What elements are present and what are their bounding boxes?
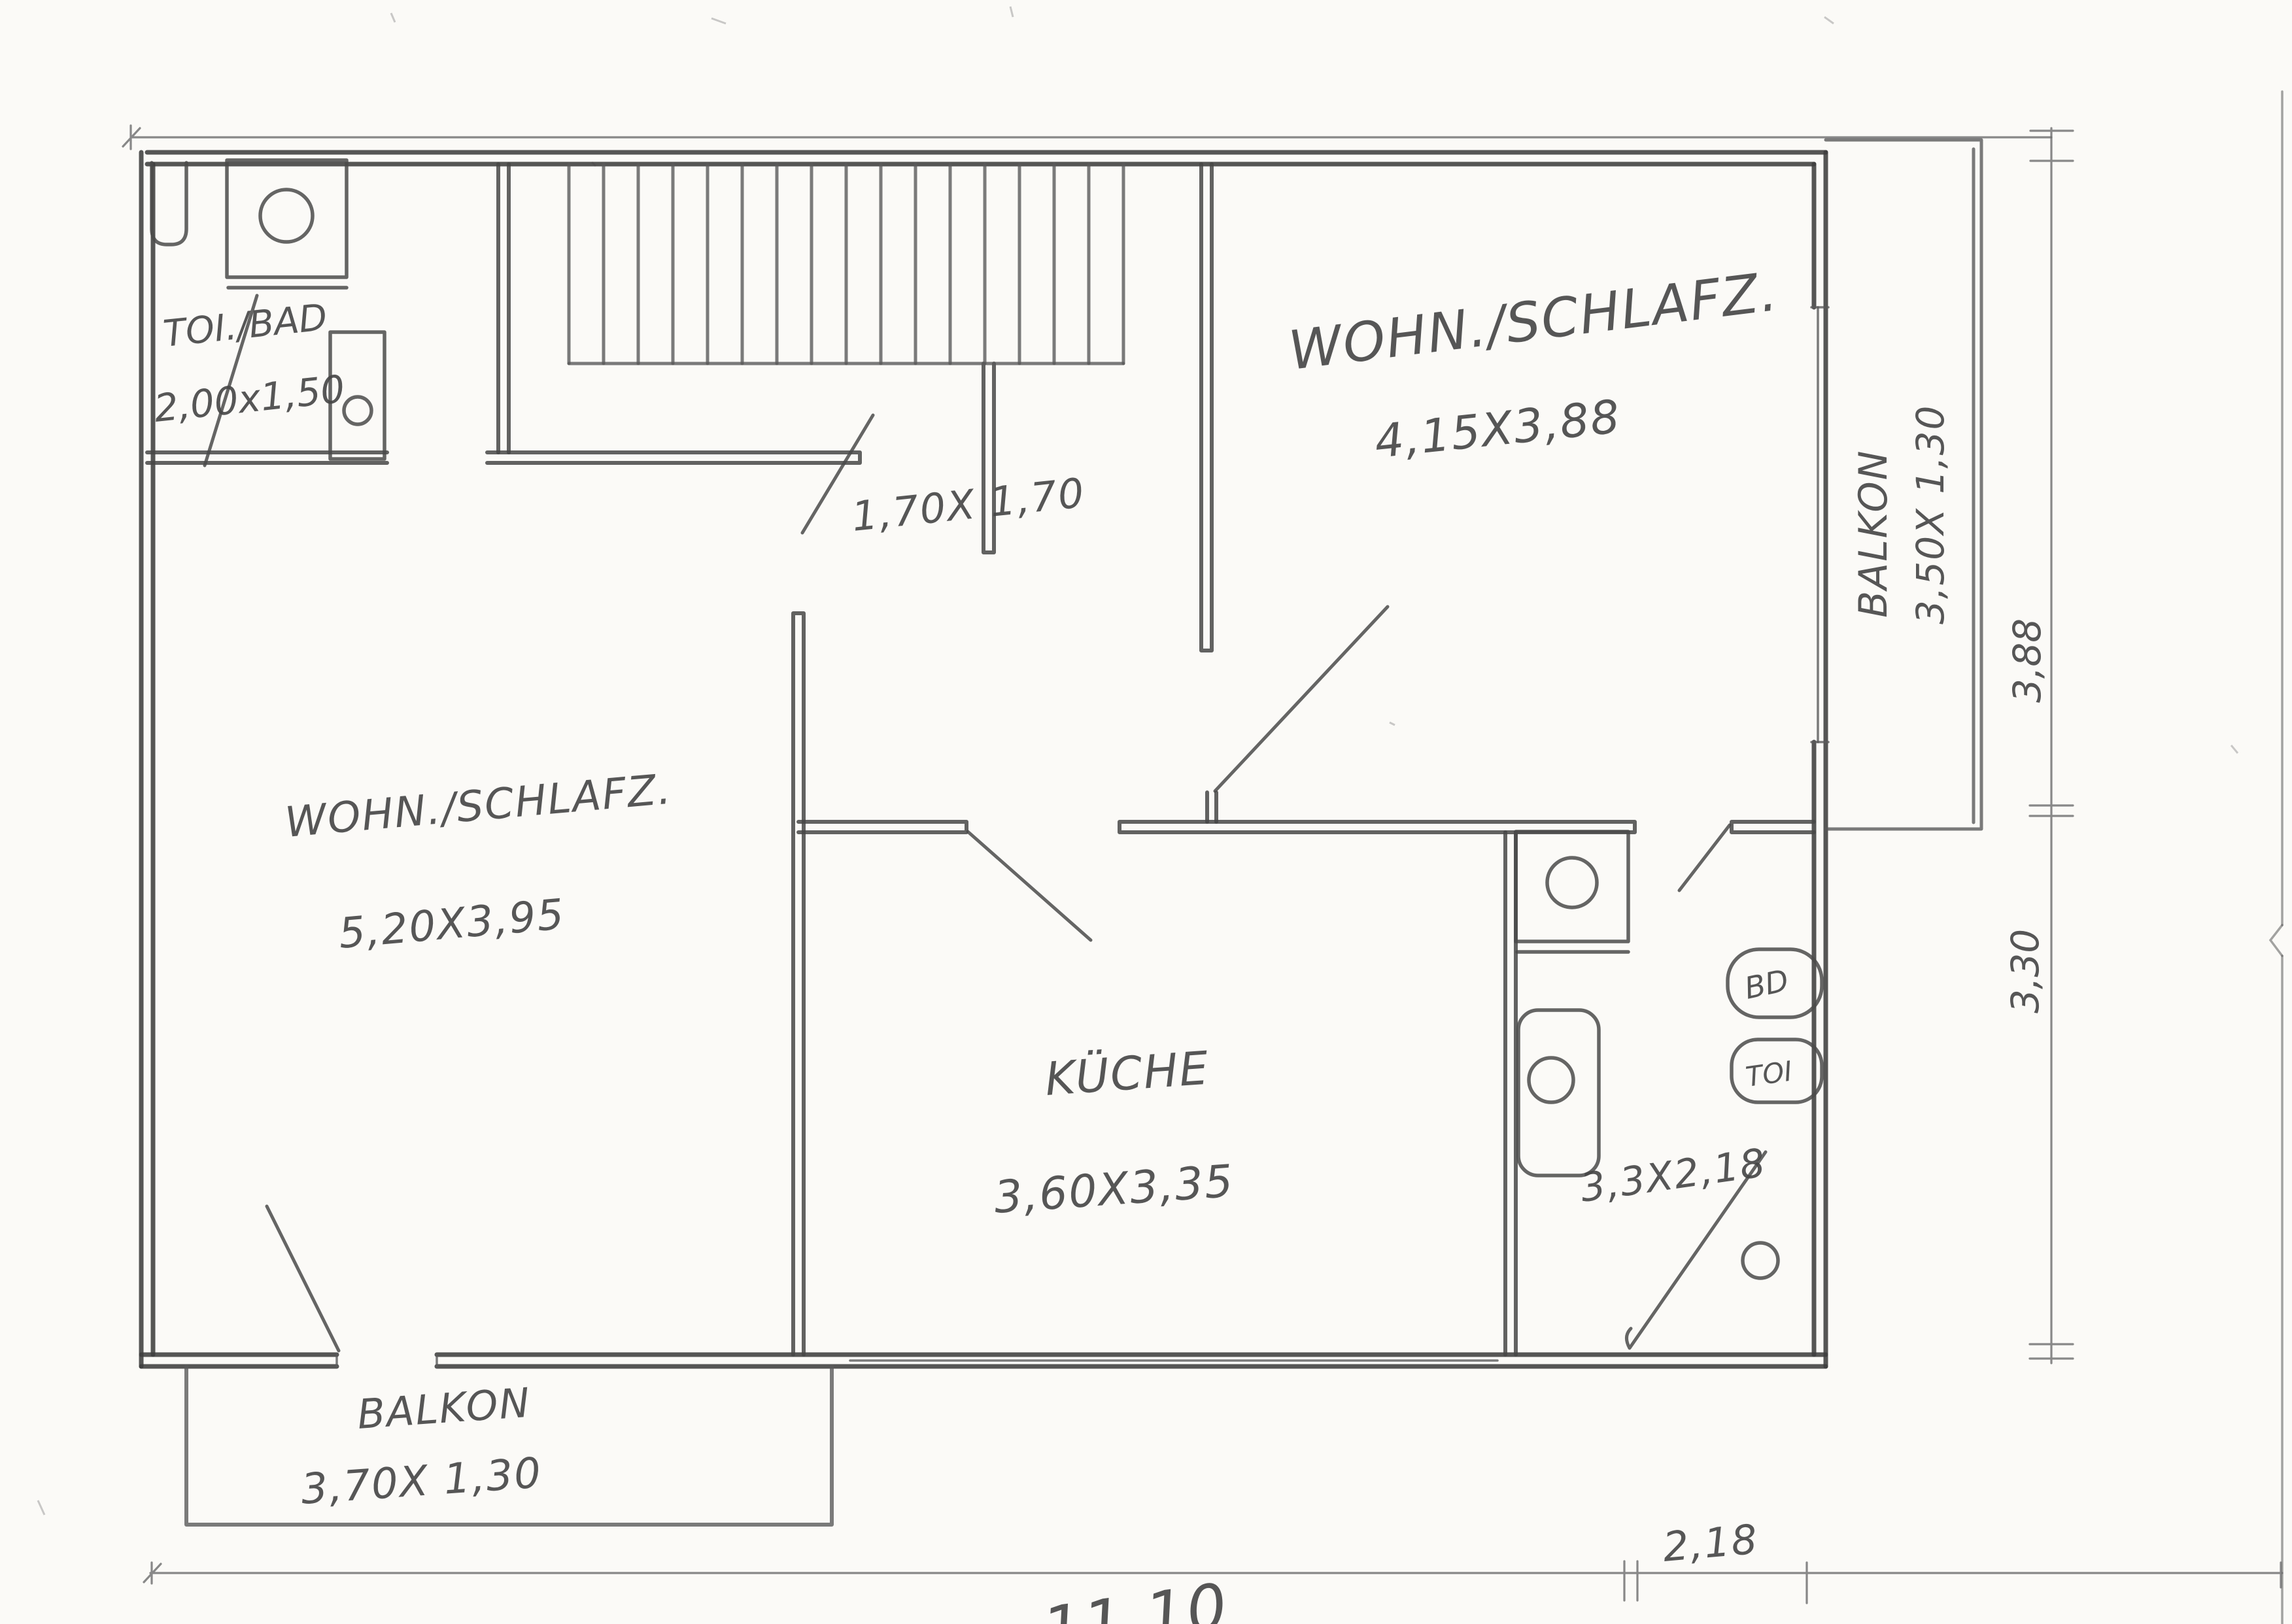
room-label-living-left: WOHN./SCHLAFZ. [283,765,674,847]
wall-leftroom-right [793,613,804,1355]
washing-machine-icon [1516,832,1628,952]
floor-plan-canvas: BD TOI BALKON 3,50X 1,30 BALKON 3,70X 1,… [0,0,2292,1624]
balcony-right-name: BALKON [1851,450,1896,618]
stairs [569,164,1123,364]
balcony-bottom-dimensions: 3,70X 1,30 [299,1449,543,1514]
room-label-kitchen: KÜCHE [1043,1041,1211,1106]
wall-hall-top [147,452,860,463]
balcony-bottom: BALKON 3,70X 1,30 [186,1366,832,1525]
door-leaf-bathroom-right [1679,825,1730,890]
room-label-living-top-right: WOHN./SCHLAFZ. [1286,261,1781,382]
floor-drain-icon [1743,1243,1778,1278]
door-leaf-balcony [267,1206,339,1351]
dimension-right-lower: 3,30 [2003,929,2047,1013]
scanned-floor-plan: BD TOI BALKON 3,50X 1,30 BALKON 3,70X 1,… [0,0,2292,1624]
room-label-toi-bad: TOI./BAD [162,296,330,356]
toilet-label: TOI [1744,1055,1794,1092]
washbasin-icon [227,160,347,288]
washing-machine-door-icon [1547,858,1597,907]
door-hinge-stub [1207,792,1216,822]
sink-drain-icon [1529,1058,1573,1102]
room-labels: TOI./BAD 2,00x1,50 WOHN./SCHLAFZ. 4,15X3… [152,261,1781,1224]
room-dims-bathroom-right: 3,3X2,18 [1577,1140,1769,1211]
door-leaf-kitchen [968,832,1091,940]
room-dims-toi-bad: 2,00x1,50 [152,367,347,431]
wall-kitchen-top [798,822,1814,832]
wall-topright-left [1201,164,1212,651]
sink-icon [1518,1010,1599,1176]
room-dims-hall: 1,70X 1,70 [849,469,1087,541]
bathtub-icon [152,163,186,245]
washbasin-bowl-icon [260,190,313,242]
fixtures-bathroom-right: BD TOI [1516,832,1822,1278]
room-dims-kitchen: 3,60X3,35 [993,1156,1236,1224]
room-dims-living-top-right: 4,15X3,88 [1372,390,1623,469]
dimension-right-upper: 3,88 [2005,618,2049,703]
bidet-label: BD [1741,962,1792,1006]
wall-bathroom-right [498,164,509,452]
dimension-bottom-right: 2,18 [1661,1515,1760,1570]
balcony-bottom-name: BALKON [356,1379,532,1438]
toilet-drain-icon [344,397,371,424]
door-leaf-topright-room [1215,607,1388,791]
balcony-right: BALKON 3,50X 1,30 [1826,140,1981,829]
room-dims-living-left: 5,20X3,95 [337,890,567,958]
dimension-total-width: 11,10 [1038,1569,1233,1624]
balcony-right-dimensions: 3,50X 1,30 [1908,405,1953,624]
